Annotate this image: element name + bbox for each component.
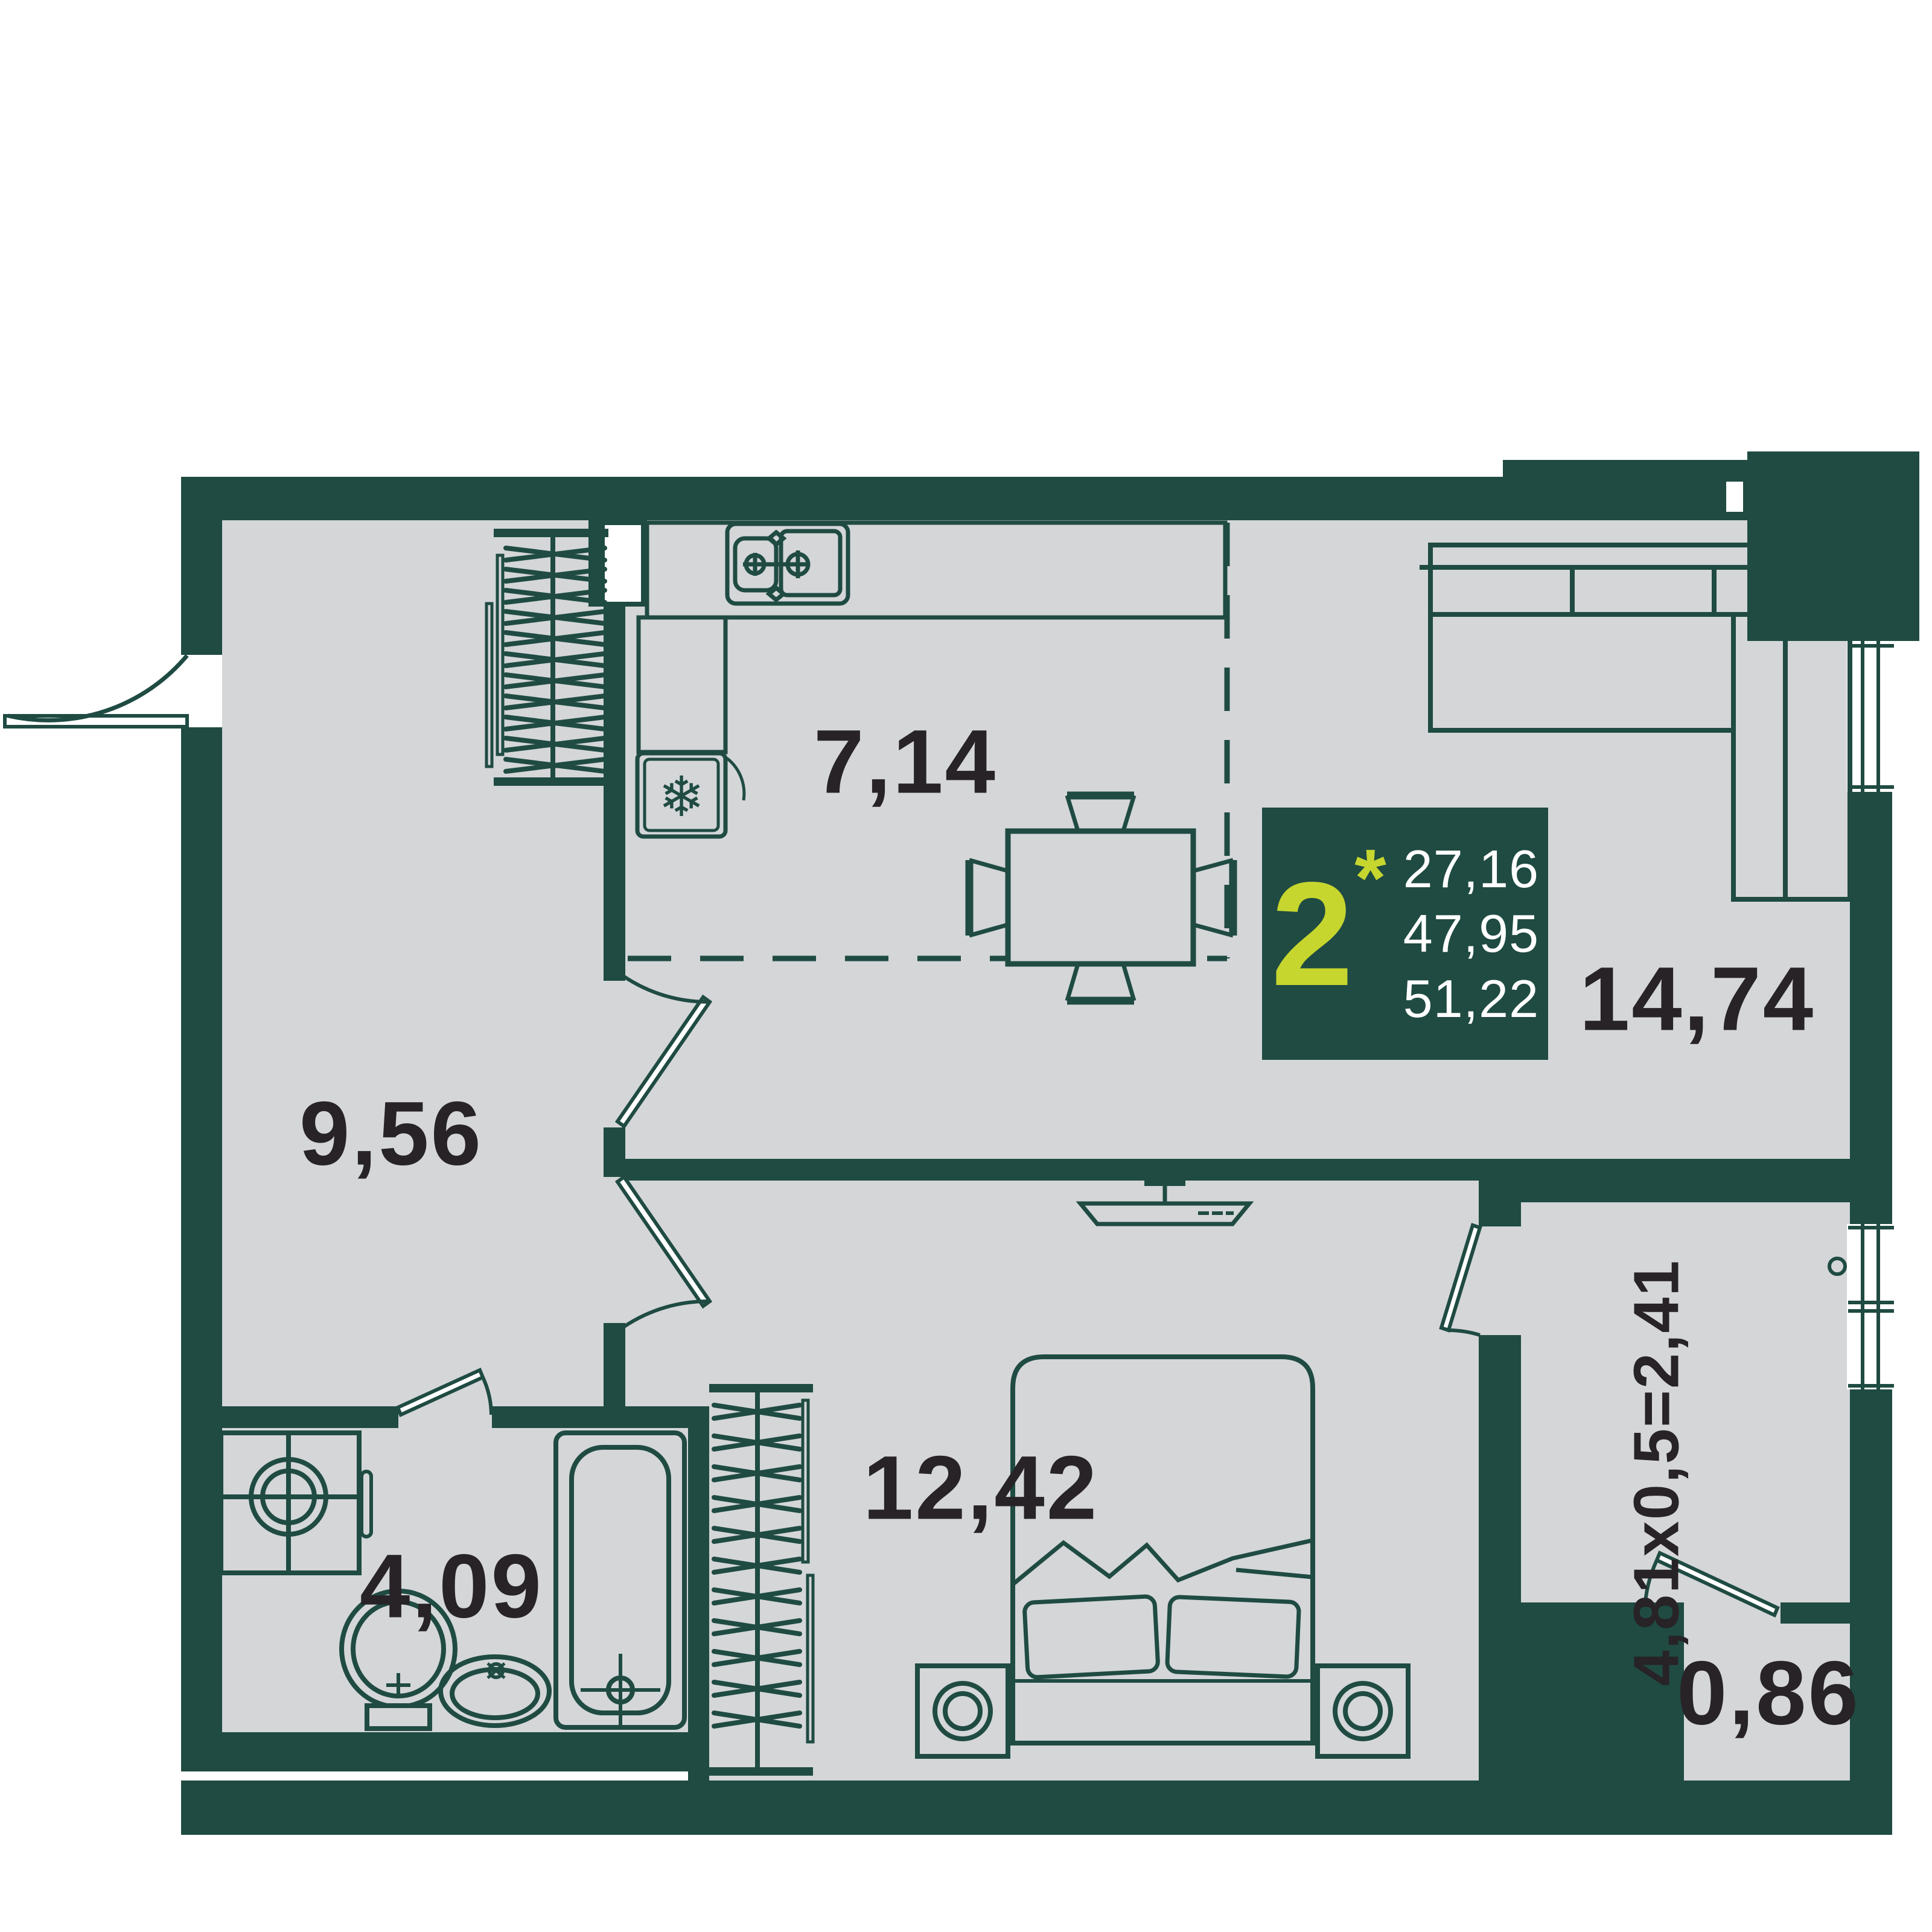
entrance-opening bbox=[187, 655, 222, 727]
area-main-value: 47,95 bbox=[1403, 901, 1539, 966]
room-area-label-living: 14,74 bbox=[1580, 947, 1815, 1051]
floor-plan: ❄ bbox=[0, 0, 1932, 1932]
area-total-value: 51,22 bbox=[1403, 966, 1539, 1031]
room-area-label-storage: 0,86 bbox=[1677, 1641, 1860, 1745]
room-area-label-bathroom: 4,09 bbox=[360, 1534, 543, 1639]
area-living-value: 27,16 bbox=[1403, 837, 1539, 901]
room-area-label-balcony: 4,81x0,5=2,41 bbox=[1621, 1260, 1694, 1686]
room-area-label-kitchen: 7,14 bbox=[814, 710, 997, 814]
living-room-window bbox=[1847, 641, 1895, 792]
asterisk: * bbox=[1354, 837, 1386, 919]
room-area-label-bedroom: 12,42 bbox=[863, 1436, 1098, 1540]
snowflake-icon: ❄ bbox=[658, 767, 704, 828]
rooms-count-value: 2 bbox=[1271, 860, 1353, 1008]
vent-shaft bbox=[605, 525, 641, 602]
entrance-door bbox=[5, 655, 187, 727]
area-values: 27,16 47,95 51,22 bbox=[1403, 837, 1539, 1031]
rooms-count: 2 * bbox=[1271, 860, 1385, 1008]
room-area-label-hallway: 9,56 bbox=[299, 1082, 483, 1186]
apartment-info-box: 2 * 27,16 47,95 51,22 bbox=[1262, 808, 1548, 1060]
